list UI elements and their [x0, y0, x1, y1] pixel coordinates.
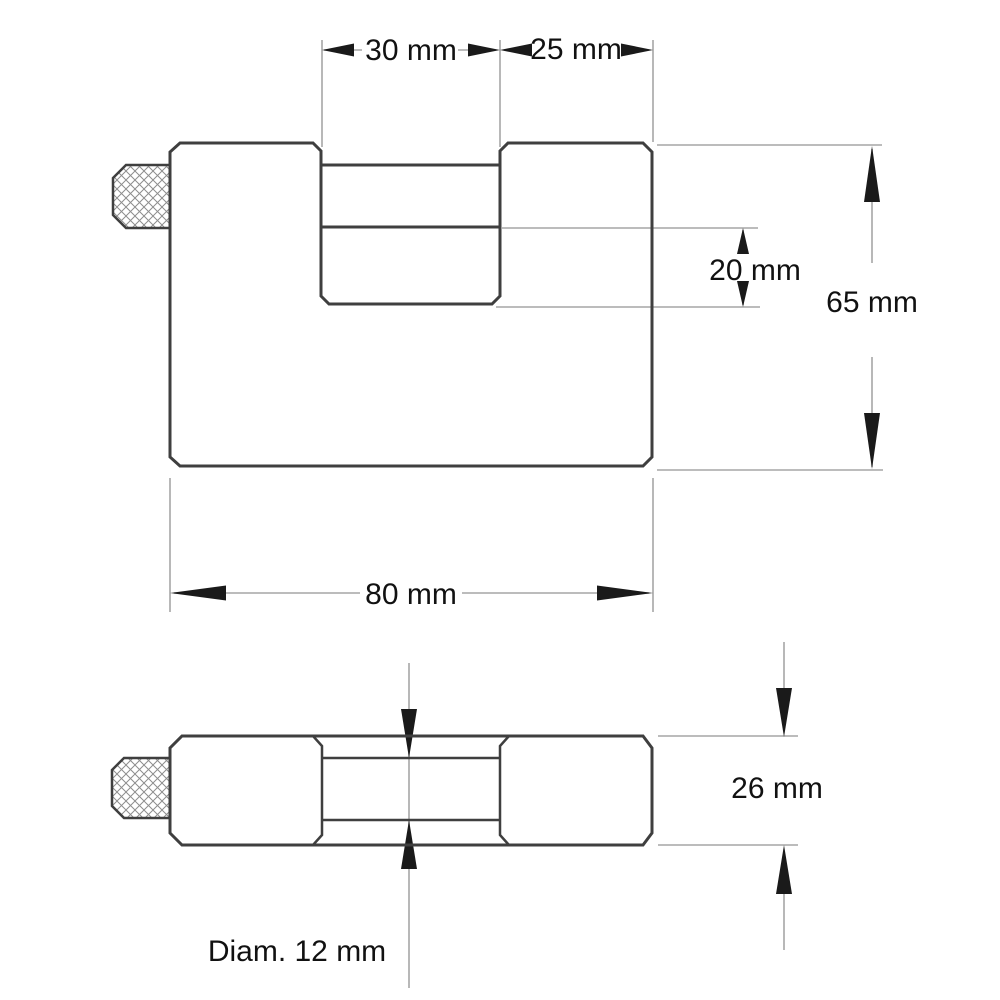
arrow-26mm-up [776, 845, 792, 894]
right-section-edge [500, 736, 509, 845]
arrow-20mm-up [737, 228, 749, 254]
padlock-front-view [113, 143, 652, 466]
arrow-80mm-left [170, 586, 226, 601]
arrow-26mm-down [776, 688, 792, 737]
bolt-knob-front [113, 165, 170, 228]
arrow-65mm-up [864, 146, 880, 202]
arrow-65mm-down [864, 413, 880, 469]
dim-label-right-block-width: 25 mm [530, 33, 622, 66]
dim-label-body-width: 80 mm [365, 578, 457, 611]
arrow-25mm-left [500, 44, 532, 57]
dim-label-bolt-diameter: Diam. 12 mm [208, 935, 386, 968]
dimension-labels: 30 mm 25 mm 20 mm 65 mm 80 mm 26 mm Diam… [208, 33, 918, 968]
dim-label-slot-width: 30 mm [365, 34, 457, 67]
padlock-body-top-outline [170, 736, 652, 845]
padlock-top-view [112, 736, 652, 845]
arrow-30mm-right [468, 44, 500, 57]
technical-drawing-canvas: 30 mm 25 mm 20 mm 65 mm 80 mm 26 mm Diam… [0, 0, 1000, 1000]
padlock-dimension-drawing: 30 mm 25 mm 20 mm 65 mm 80 mm 26 mm Diam… [0, 0, 1000, 1000]
left-section-edge [313, 736, 322, 845]
bolt-knob-top [112, 758, 170, 818]
dim-label-body-height: 65 mm [826, 286, 918, 319]
arrow-diam-down [401, 709, 417, 758]
arrow-30mm-left [322, 44, 354, 57]
dimension-arrows [170, 44, 880, 895]
arrow-80mm-right [597, 586, 653, 601]
arrow-25mm-right [621, 44, 653, 57]
padlock-body-outline [170, 143, 652, 466]
dim-label-body-depth: 26 mm [731, 772, 823, 805]
dim-label-opening-height: 20 mm [709, 254, 801, 287]
